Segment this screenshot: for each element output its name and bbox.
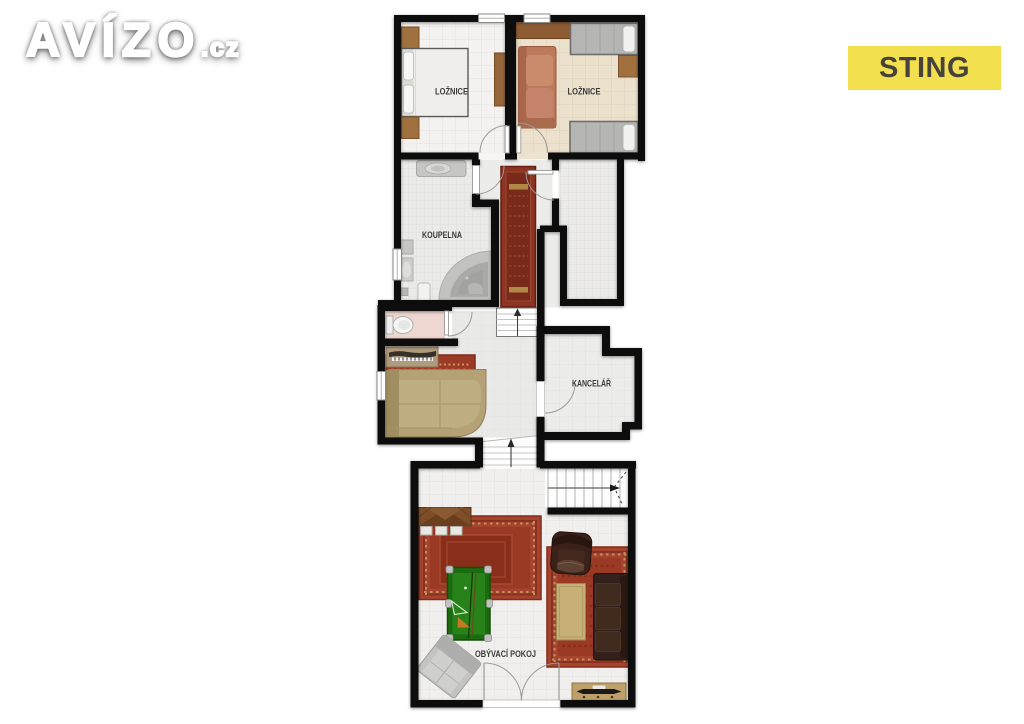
svg-text:LOŽNICE: LOŽNICE (435, 85, 468, 96)
svg-text:LOŽNICE: LOŽNICE (568, 85, 601, 96)
svg-text:OBÝVACÍ POKOJ: OBÝVACÍ POKOJ (475, 648, 536, 659)
svg-text:KOUPELNA: KOUPELNA (422, 230, 463, 240)
svg-text:KANCELÁŘ: KANCELÁŘ (572, 378, 612, 389)
